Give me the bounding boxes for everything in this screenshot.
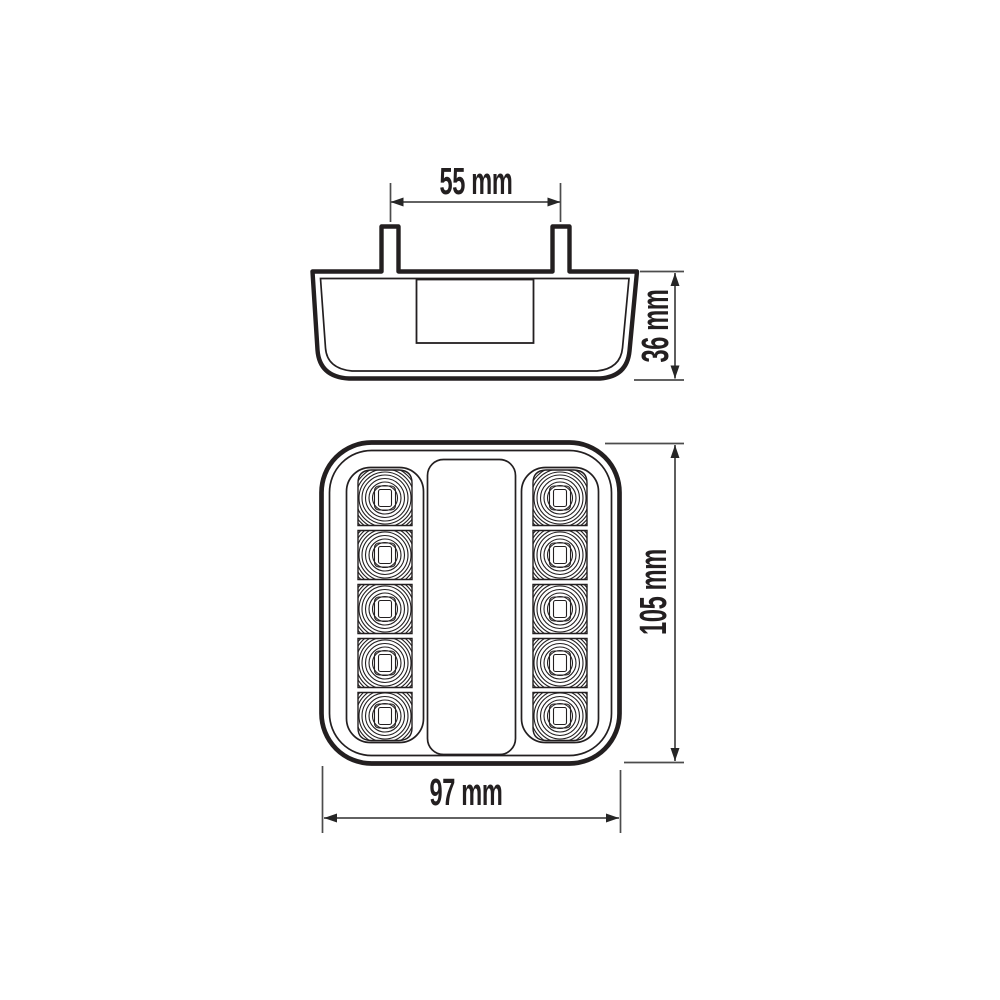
led-cell — [521, 570, 599, 648]
side-height-label: 36 mm — [633, 289, 676, 362]
dimension-stud-spacing: 55 mm — [391, 159, 561, 222]
front-view-inner-outline — [330, 451, 612, 756]
dimension-front-height: 105 mm — [605, 444, 684, 763]
led-cell — [346, 570, 424, 648]
technical-drawing-page: 55 mm 36 mm — [0, 0, 1000, 1000]
led-column-left — [346, 459, 424, 755]
side-view-connector-box — [417, 280, 534, 344]
side-view-body-outline — [313, 227, 638, 379]
front-width-label: 97 mm — [429, 770, 502, 813]
led-cell — [521, 624, 599, 702]
led-cell — [521, 516, 599, 594]
led-cell — [346, 516, 424, 594]
stud-spacing-label: 55 mm — [439, 159, 512, 202]
front-view — [322, 443, 620, 764]
side-view — [313, 227, 638, 379]
dimension-side-height: 36 mm — [633, 272, 684, 381]
led-cell — [346, 624, 424, 702]
dimension-front-width: 97 mm — [323, 766, 621, 833]
side-view-inner-outline — [321, 279, 630, 372]
led-column-right — [521, 459, 599, 755]
center-lens-panel — [428, 460, 516, 755]
technical-drawing-canvas: 55 mm 36 mm — [0, 0, 1000, 1000]
front-height-label: 105 mm — [631, 549, 674, 635]
